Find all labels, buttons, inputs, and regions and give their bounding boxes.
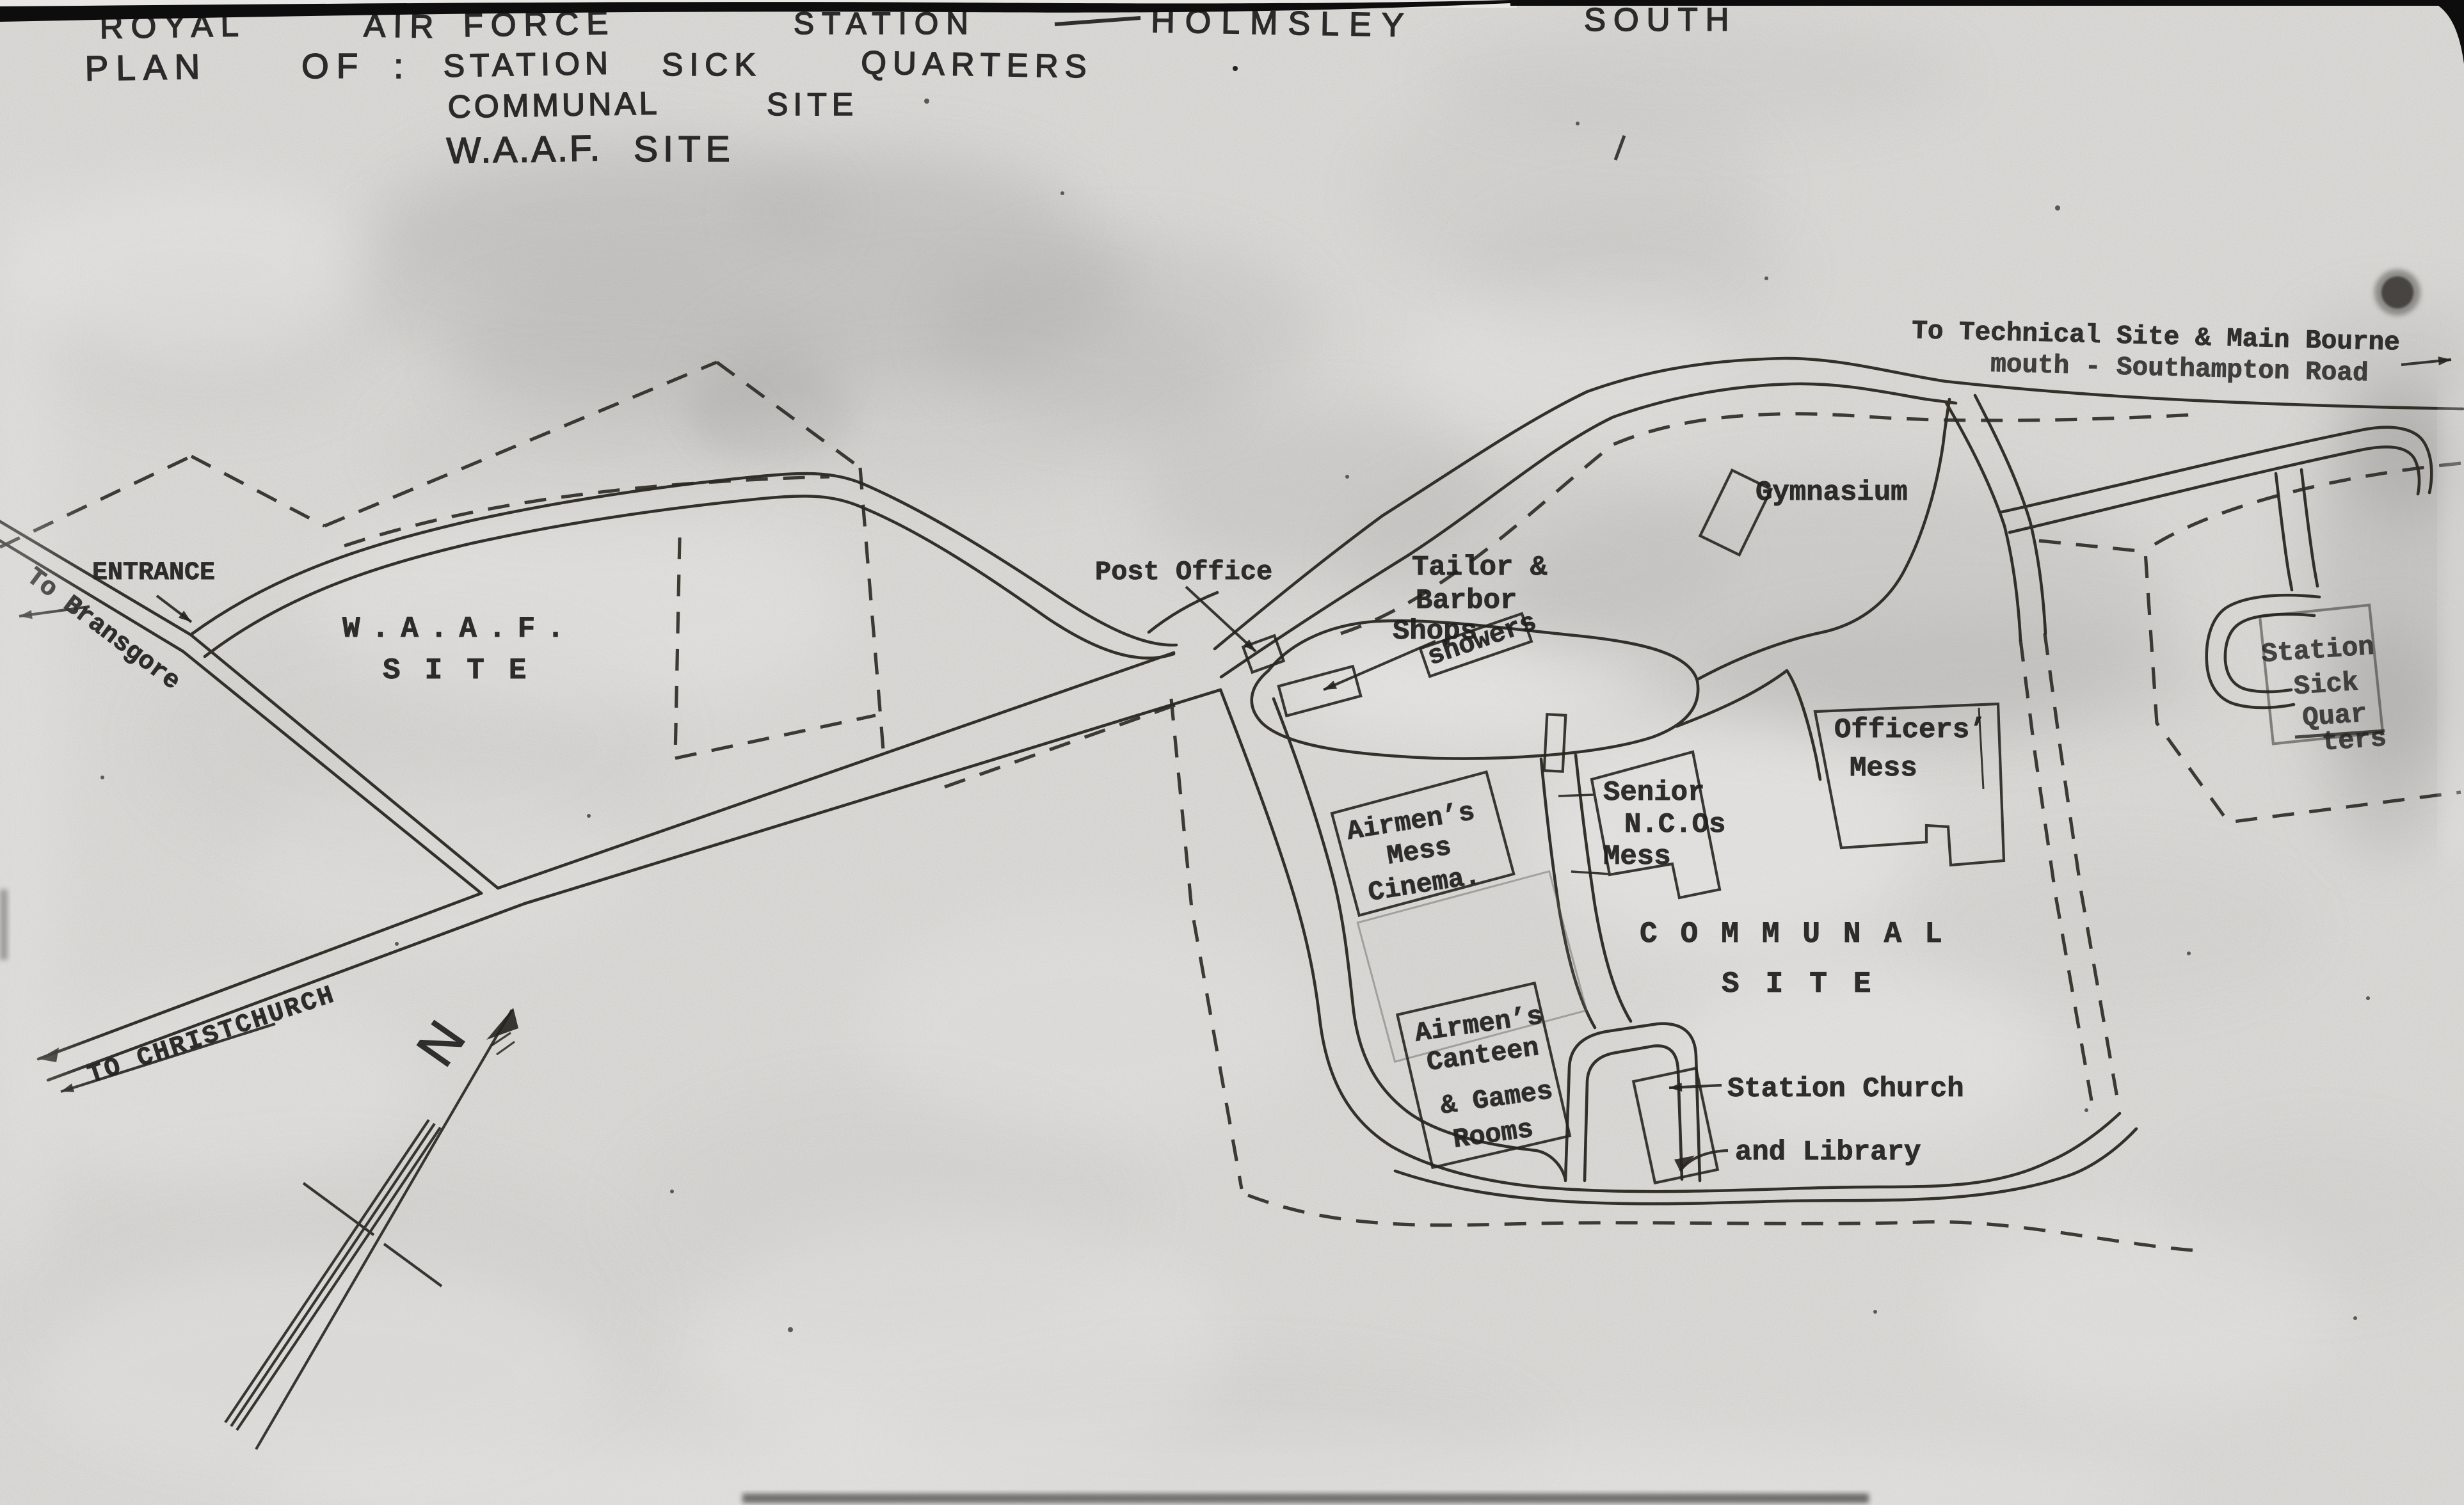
svg-text:Post Office: Post Office	[1095, 557, 1272, 587]
svg-text:Officers’: Officers’	[1834, 714, 1987, 746]
svg-text:Tailor &: Tailor &	[1412, 552, 1548, 584]
svg-text:SOUTH: SOUTH	[1584, 1, 1737, 38]
svg-text:Senior: Senior	[1603, 777, 1704, 809]
svg-text:SICK: SICK	[662, 47, 762, 83]
svg-text:COMMUNAL: COMMUNAL	[447, 85, 660, 125]
svg-text:Station Church: Station Church	[1727, 1073, 1964, 1105]
svg-text:STATION: STATION	[794, 7, 976, 41]
svg-text:Gymnasium: Gymnasium	[1756, 477, 1908, 509]
svg-text:and Library: and Library	[1735, 1136, 1921, 1168]
svg-text:N.C.Os: N.C.Os	[1624, 809, 1725, 841]
svg-text:SITE: SITE	[383, 654, 550, 687]
svg-text::: :	[394, 46, 403, 86]
svg-text:Sick: Sick	[2292, 667, 2359, 703]
svg-text:Mess: Mess	[1850, 752, 1917, 784]
svg-text:STATION: STATION	[443, 45, 613, 84]
svg-text:OF: OF	[301, 46, 365, 86]
svg-text:SITE: SITE	[634, 129, 735, 170]
svg-text:SITE: SITE	[1722, 967, 1897, 1001]
svg-text:PLAN: PLAN	[84, 47, 208, 88]
svg-text:W.A.A.F.: W.A.A.F.	[446, 128, 602, 171]
svg-text:ters: ters	[2321, 723, 2388, 758]
svg-text:QUARTERS: QUARTERS	[861, 44, 1093, 84]
svg-text:W.A.A.F.: W.A.A.F.	[342, 612, 576, 646]
svg-text:SITE: SITE	[767, 86, 858, 122]
svg-text:Mess: Mess	[1603, 841, 1671, 873]
svg-text:Barbor: Barbor	[1416, 585, 1517, 617]
svg-text:COMMUNAL: COMMUNAL	[1640, 918, 1965, 951]
svg-text:ENTRANCE: ENTRANCE	[92, 559, 215, 587]
